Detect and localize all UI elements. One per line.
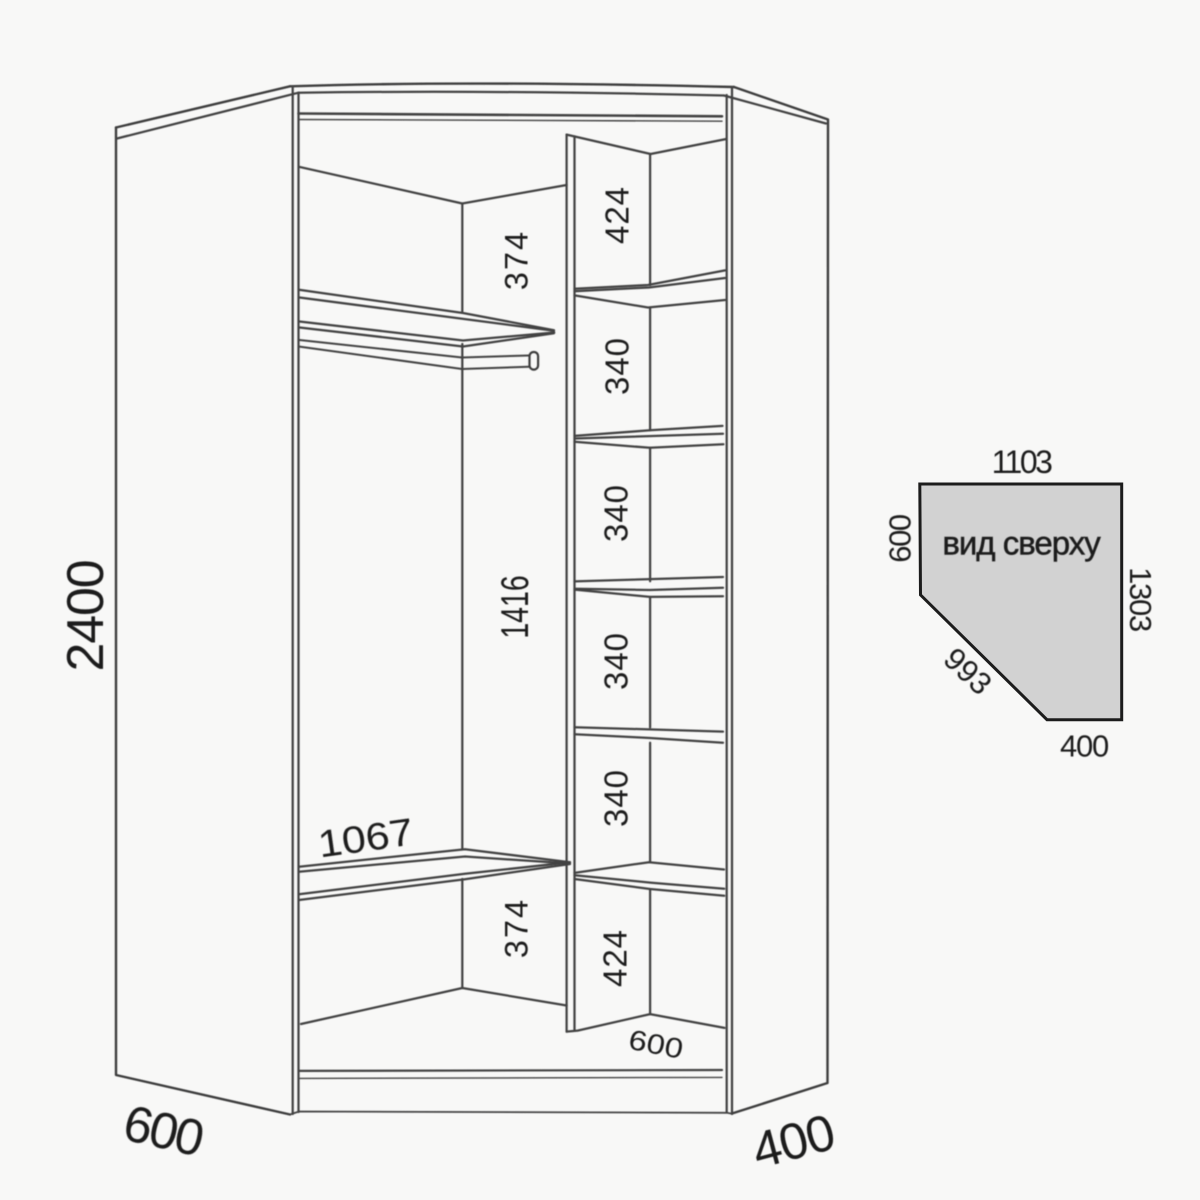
svg-text:340: 340 (598, 632, 635, 690)
svg-text:1103: 1103 (992, 444, 1053, 480)
svg-text:340: 340 (598, 769, 635, 827)
svg-text:424: 424 (597, 929, 634, 987)
svg-text:424: 424 (599, 186, 636, 244)
svg-text:600: 600 (883, 514, 918, 563)
svg-text:вид сверху: вид сверху (942, 524, 1101, 561)
svg-text:1416: 1416 (494, 575, 537, 638)
svg-text:2400: 2400 (57, 561, 115, 672)
svg-text:374: 374 (498, 898, 534, 958)
svg-text:1303: 1303 (1123, 567, 1158, 631)
svg-text:340: 340 (598, 484, 635, 542)
svg-text:340: 340 (599, 337, 636, 395)
svg-text:400: 400 (1060, 728, 1109, 763)
svg-text:374: 374 (498, 230, 534, 290)
